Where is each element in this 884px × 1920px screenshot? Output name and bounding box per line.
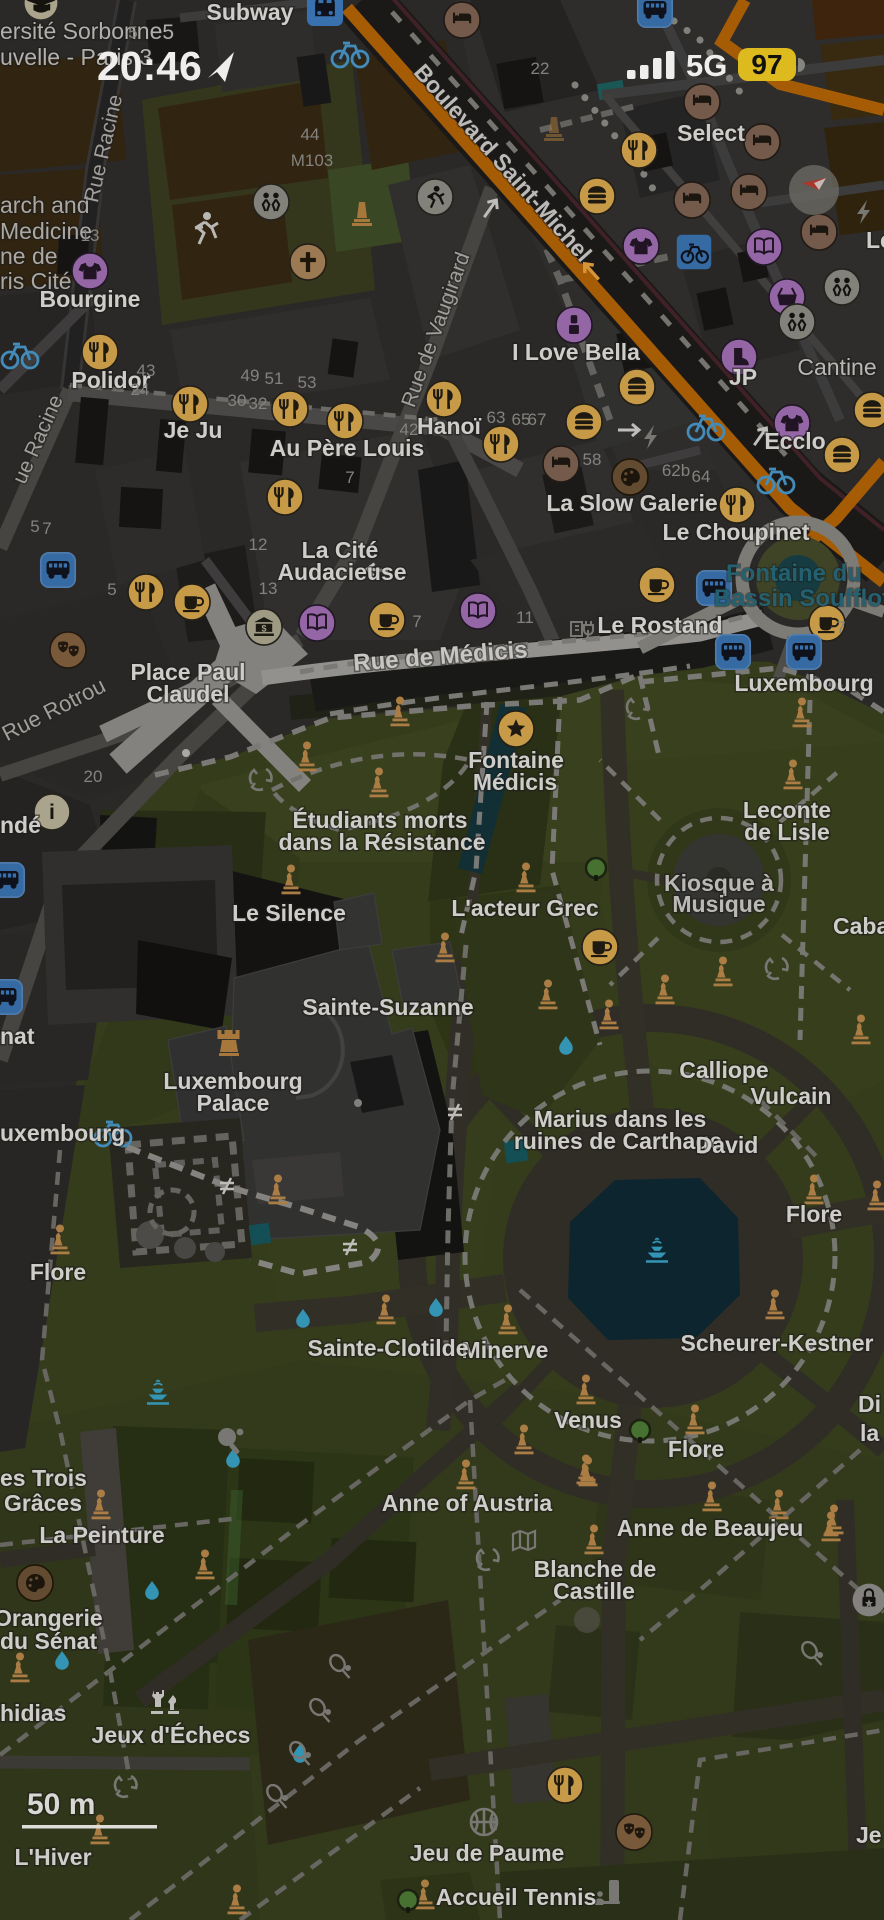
svg-text:20:46: 20:46 <box>97 43 202 89</box>
svg-text:5G: 5G <box>686 48 727 83</box>
svg-text:97: 97 <box>751 49 782 80</box>
